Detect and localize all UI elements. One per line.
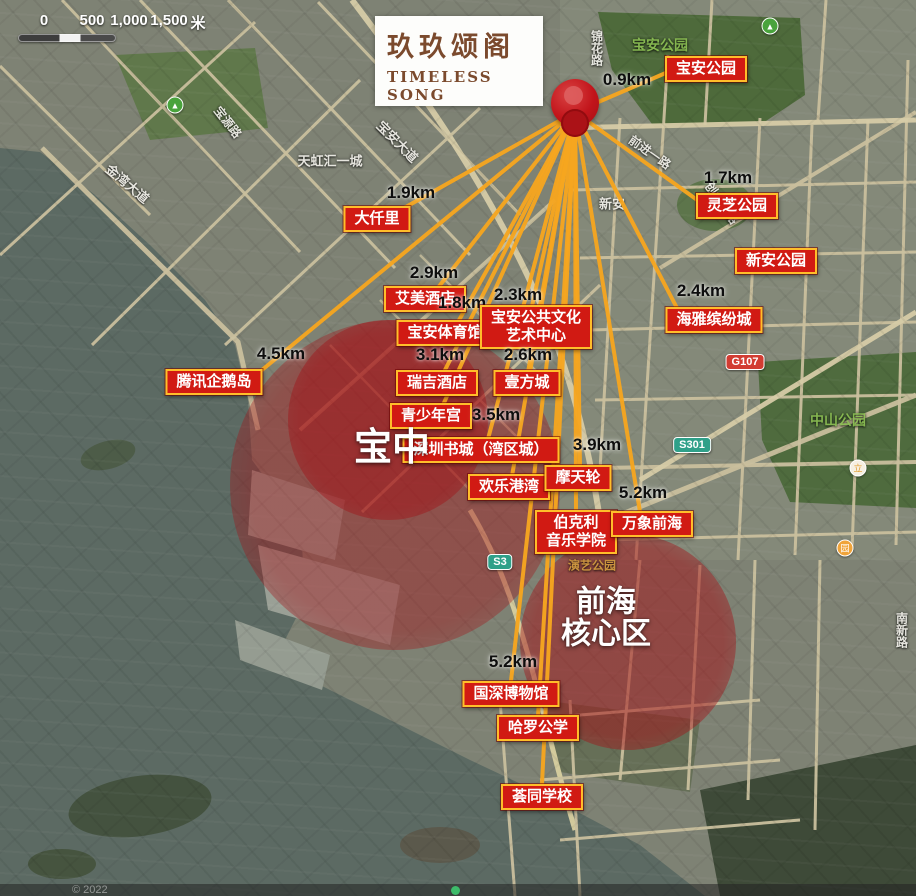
region-label-line: 前海 <box>561 587 651 619</box>
attribution-bar: © 2022 <box>0 884 916 896</box>
region-label-baozhong: 宝中 <box>354 429 430 469</box>
attribution-green-dot-icon <box>451 886 460 895</box>
marketing-map: 宝安公园中山公园演艺公园金湾大道宝源路天虹汇一城宝安大道锦花路新安前进一路创业二… <box>0 0 916 896</box>
map-scale-bar: 05001,0001,500米 <box>14 6 234 52</box>
scale-bar-segments <box>18 34 116 42</box>
project-logo: 玖玖颂阁 TIMELESS SONG <box>375 16 543 106</box>
attribution-text: © 2022 <box>72 884 108 896</box>
project-logo-subtitle-line2: SONG <box>387 86 533 104</box>
region-labels-layer: 宝中前海核心区 <box>0 0 916 896</box>
region-label-line: 宝中 <box>354 429 430 469</box>
project-logo-subtitle-line1: TIMELESS <box>387 68 533 86</box>
region-label-qianhai-core: 前海核心区 <box>561 587 651 650</box>
scale-tick: 1,000 <box>110 12 148 29</box>
scale-unit: 米 <box>190 12 205 33</box>
scale-tick: 500 <box>79 12 104 29</box>
region-label-line: 核心区 <box>561 618 651 650</box>
scale-tick: 1,500 <box>150 12 188 29</box>
scale-tick: 0 <box>40 12 48 29</box>
project-logo-title: 玖玖颂阁 <box>387 25 533 64</box>
